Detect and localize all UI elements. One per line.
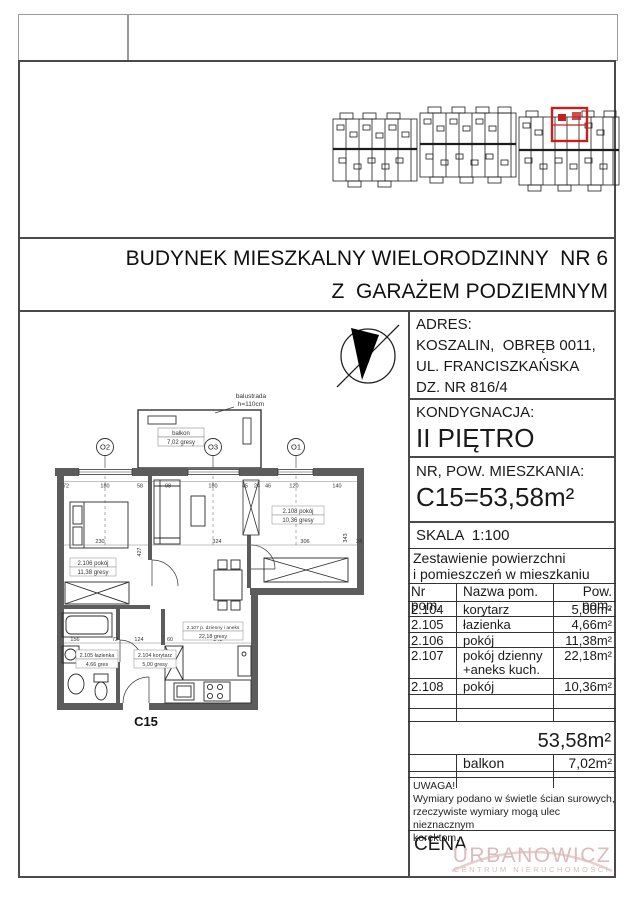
sheet-page: BUDYNEK MIESZKALNY WIELORODZINNY NR 6 Z … — [0, 0, 636, 900]
windows — [79, 470, 313, 475]
disclaimer-title: UWAGA! — [413, 780, 616, 793]
table-row: 2.104 korytarz 5,00m² — [408, 601, 616, 616]
svg-text:156: 156 — [70, 637, 79, 643]
svg-text:2.107 p. dzienny i aneks: 2.107 p. dzienny i aneks — [187, 625, 240, 631]
room-area: 22,18m² — [553, 648, 616, 678]
room-label-2108: 2.108 pokój 10,36 gresy — [272, 506, 324, 524]
table-row: 2.105 łazienka 4,66m² — [408, 616, 616, 632]
balustrade-note-line1: balustrada — [236, 393, 267, 400]
balcony-row: balkon 7,02m² — [408, 754, 616, 771]
table-row: 2.107 pokój dzienny +aneks kuch. 22,18m² — [408, 647, 616, 678]
unit-area-label: NR, POW. MIESZKANIA: — [416, 461, 612, 482]
storey-section: KONDYGNACJA: II PIĘTRO — [416, 402, 612, 453]
table-header-area: Pow. pom. — [553, 584, 616, 601]
room-label-2104: 2.104 korytarz 5,00 gresy — [134, 650, 176, 668]
table-title-line1: Zestawienie powierzchni — [413, 550, 616, 566]
svg-text:24: 24 — [254, 484, 260, 490]
desk — [191, 496, 205, 526]
svg-text:180: 180 — [208, 484, 217, 490]
floor-plan: balustrada h=110cm balkon 7,02 gresy — [18, 310, 408, 878]
overview-left-wing — [333, 113, 417, 187]
dining-table — [214, 560, 242, 610]
north-arrow-icon — [337, 325, 399, 387]
watermark-subtitle: CENTRUM NIERUCHOMOŚCI — [454, 865, 611, 874]
kitchen — [165, 646, 251, 703]
address-line-city: KOSZALIN, OBRĘB 0011, — [416, 335, 612, 356]
room-label-2107: 2.107 p. dzienny i aneks 22,18 gresy — [183, 622, 243, 640]
room-name: pokój — [456, 633, 553, 647]
axis-label: O1 — [291, 443, 301, 452]
disclaimer-section: UWAGA! Wymiary podano w świetle ścian su… — [408, 777, 616, 831]
area-table: Zestawienie powierzchni i pomieszczeń w … — [408, 548, 616, 788]
building-overview-plan — [330, 92, 622, 207]
table-header-name: Nazwa pom. — [456, 584, 553, 601]
svg-text:2.104 korytarz: 2.104 korytarz — [138, 653, 172, 659]
unit-label: C15 — [134, 714, 158, 729]
balcony-name: balkon — [456, 755, 553, 771]
svg-text:120: 120 — [289, 484, 298, 490]
svg-text:140: 140 — [332, 484, 341, 490]
axis-label: O2 — [100, 443, 110, 452]
svg-text:124: 124 — [134, 637, 143, 643]
svg-text:5,00 gresy: 5,00 gresy — [142, 662, 167, 668]
svg-text:balkon: balkon — [172, 431, 190, 437]
room-area: 4,66m² — [553, 617, 616, 632]
wardrobe-bedroom2 — [264, 558, 348, 582]
address-label: ADRES: — [416, 314, 612, 335]
room-name: pokój — [456, 679, 553, 694]
table-empty-row — [408, 708, 616, 721]
storey-label: KONDYGNACJA: — [416, 402, 612, 423]
table-row: 2.106 pokój 11,38m² — [408, 632, 616, 647]
svg-text:58: 58 — [137, 484, 143, 490]
balcony-label: balkon 7,02 gresy — [158, 428, 204, 446]
balustrade-note-line2: h=110cm — [238, 401, 264, 408]
room-label-2105: 2.105 łazienka 4,66 gres — [76, 650, 118, 668]
svg-text:72: 72 — [63, 484, 69, 490]
room-name: łazienka — [456, 617, 553, 632]
room-label-2106: 2.106 pokój 11,38 gresy — [70, 558, 116, 576]
address-line-street: UL. FRANCISZKAŃSKA — [416, 356, 612, 377]
room-area: 5,00m² — [553, 602, 616, 616]
svg-text:427: 427 — [137, 547, 143, 556]
svg-text:11,38 gresy: 11,38 gresy — [78, 570, 109, 576]
address-section: ADRES: KOSZALIN, OBRĘB 0011, UL. FRANCIS… — [416, 314, 612, 398]
balcony: balkon 7,02 gresy — [138, 410, 261, 468]
balcony-area: 7,02m² — [553, 755, 616, 771]
panel-divider-3 — [410, 521, 616, 523]
room-name: pokój dzienny +aneks kuch. — [456, 648, 553, 678]
overview-right-wing — [519, 111, 619, 191]
sofa — [154, 480, 180, 544]
table-title-line2: i pomieszczeń w mieszkaniu — [413, 566, 616, 582]
table-header-row: Nr pom. Nazwa pom. Pow. pom. — [408, 583, 616, 601]
svg-text:24: 24 — [356, 539, 362, 545]
address-line-plot: DZ. NR 816/4 — [416, 377, 612, 398]
svg-text:230: 230 — [95, 539, 104, 545]
total-area-value: 53,58m² — [538, 730, 616, 754]
svg-text:324: 324 — [212, 539, 221, 545]
table-total-row: 53,58m² — [408, 721, 616, 754]
panel-divider-1 — [410, 398, 616, 400]
disclaimer-line: Wymiary podano w świetle ścian surowych, — [413, 793, 616, 806]
svg-text:7,02 gresy: 7,02 gresy — [167, 440, 195, 446]
svg-text:180: 180 — [100, 484, 109, 490]
svg-text:46: 46 — [265, 484, 271, 490]
room-nr: 2.104 — [408, 602, 456, 616]
unit-area-section: NR, POW. MIESZKANIA: C15=53,58m² — [416, 461, 612, 512]
svg-text:60: 60 — [167, 637, 173, 643]
room-name: korytarz — [456, 602, 553, 616]
svg-text:98: 98 — [165, 484, 171, 490]
svg-text:2.106 pokój: 2.106 pokój — [77, 561, 108, 567]
room-nr: 2.105 — [408, 617, 456, 632]
room-nr: 2.108 — [408, 679, 456, 694]
wardrobe — [65, 582, 129, 604]
svg-text:45: 45 — [242, 484, 248, 490]
room-area: 10,36m² — [553, 679, 616, 694]
unit-area-value: C15=53,58m² — [416, 482, 612, 512]
room-nr: 2.106 — [408, 633, 456, 647]
disclaimer-line: rzeczywiste wymiary mogą ulec nieznaczny… — [413, 806, 616, 832]
table-header-nr: Nr pom. — [408, 584, 456, 601]
svg-text:4,66 gres: 4,66 gres — [86, 662, 109, 668]
svg-text:72: 72 — [112, 637, 118, 643]
sheet-title-line1: BUDYNEK MIESZKALNY WIELORODZINNY NR 6 — [24, 242, 608, 275]
watermark-name: URBANOWICZ — [453, 844, 612, 867]
titleblock-small-box — [18, 14, 129, 61]
svg-text:343: 343 — [343, 533, 349, 542]
svg-text:22,18 gresy: 22,18 gresy — [199, 634, 227, 640]
room-area: 11,38m² — [553, 633, 616, 647]
titleblock-wide-box — [127, 14, 618, 61]
svg-text:306: 306 — [300, 539, 309, 545]
storey-value: II PIĘTRO — [416, 423, 612, 453]
table-row: 2.108 pokój 10,36m² — [408, 678, 616, 694]
room-labels: 2.106 pokój 11,38 gresy 2.105 łazienka 4… — [70, 506, 324, 668]
divider-above-title — [18, 237, 616, 239]
svg-text:2.105 łazienka: 2.105 łazienka — [80, 653, 115, 659]
panel-divider-2 — [410, 456, 616, 458]
room-nr: 2.107 — [408, 648, 456, 678]
agency-watermark: URBANOWICZ CENTRUM NIERUCHOMOŚCI — [408, 831, 616, 874]
svg-text:10,36 gresy: 10,36 gresy — [282, 518, 313, 524]
axis-label: O3 — [208, 443, 218, 452]
price-section: CENA URBANOWICZ CENTRUM NIERUCHOMOŚCI — [408, 831, 616, 874]
sheet-title: BUDYNEK MIESZKALNY WIELORODZINNY NR 6 Z … — [24, 242, 608, 308]
table-title-row: Zestawienie powierzchni i pomieszczeń w … — [408, 548, 616, 583]
scale-label: SKALA 1:100 — [416, 525, 612, 546]
table-empty-row — [408, 694, 616, 708]
svg-text:2.108 pokój: 2.108 pokój — [282, 509, 313, 515]
sheet-title-line2: Z GARAŻEM PODZIEMNYM — [24, 275, 608, 308]
overview-middle-wing — [420, 107, 516, 183]
